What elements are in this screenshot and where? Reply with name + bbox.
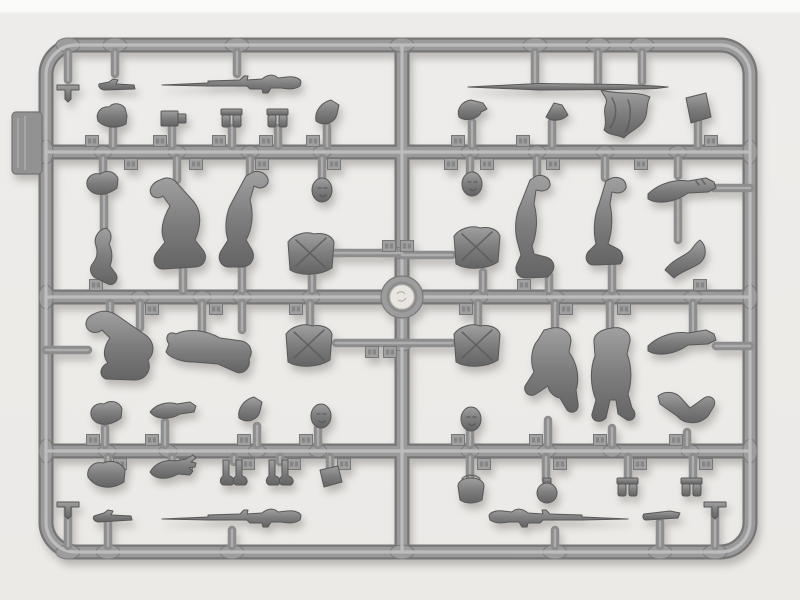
central-hub (381, 276, 423, 318)
part-bent-arm-b (665, 240, 705, 278)
part-pouch-small (320, 466, 342, 487)
part-pouch-pair-c (617, 478, 638, 496)
part-rod-bottom-right (643, 511, 680, 520)
photo-of-model-sprue (0, 0, 800, 600)
part-arm-extended (150, 402, 196, 418)
part-legs-kneeling (219, 171, 268, 267)
part-rolled-cap-b (91, 402, 122, 425)
part-head-a (312, 178, 332, 202)
part-side-cap-a (316, 100, 339, 124)
sprue (12, 38, 757, 559)
part-legs-bent-knee (525, 328, 578, 413)
part-pouch-pair-d (681, 478, 702, 496)
part-rifle-top-left (162, 75, 301, 93)
part-canteen (537, 478, 557, 503)
part-torso-d (454, 325, 500, 366)
part-rolled-cap-a (87, 172, 118, 195)
part-tpin-top-left (57, 85, 79, 102)
part-tpin-bottom-left (57, 502, 79, 519)
part-arm-pair-a (648, 178, 716, 202)
part-case-right (686, 93, 711, 123)
part-head-c (311, 404, 331, 428)
part-legs-boot-up-b (586, 177, 626, 265)
part-bent-arm-c (658, 392, 715, 422)
part-lance (468, 84, 668, 91)
gate-tab (12, 112, 42, 174)
part-mess-tin (458, 475, 484, 503)
part-rod-bottom-left (93, 510, 132, 522)
part-visor-cap (458, 100, 487, 119)
part-legs-standing (591, 328, 635, 422)
part-legs-zigzag (150, 178, 205, 269)
mold-mark (390, 285, 414, 309)
part-flag (601, 90, 650, 138)
part-rod-top-left (99, 79, 135, 90)
part-bent-arm-a (91, 228, 117, 284)
part-tpin-bottom-right (704, 502, 726, 519)
part-boot-upper (97, 104, 127, 127)
part-seated-legs-b (166, 331, 251, 373)
part-head-d (461, 407, 481, 431)
part-peak-hat (546, 103, 568, 120)
part-arm-pair-b (648, 330, 716, 354)
part-rifle-bottom-right (489, 509, 628, 527)
part-ammo-box (161, 111, 186, 126)
part-head-b (462, 172, 482, 196)
part-torso-a (288, 233, 334, 274)
part-torso-b (454, 227, 500, 268)
part-tall-boot (88, 461, 125, 487)
part-rifle-bottom-left (162, 509, 301, 527)
part-side-cap-b (239, 397, 262, 421)
part-torso-c (286, 325, 332, 366)
part-legs-boot-up-a (516, 175, 554, 278)
